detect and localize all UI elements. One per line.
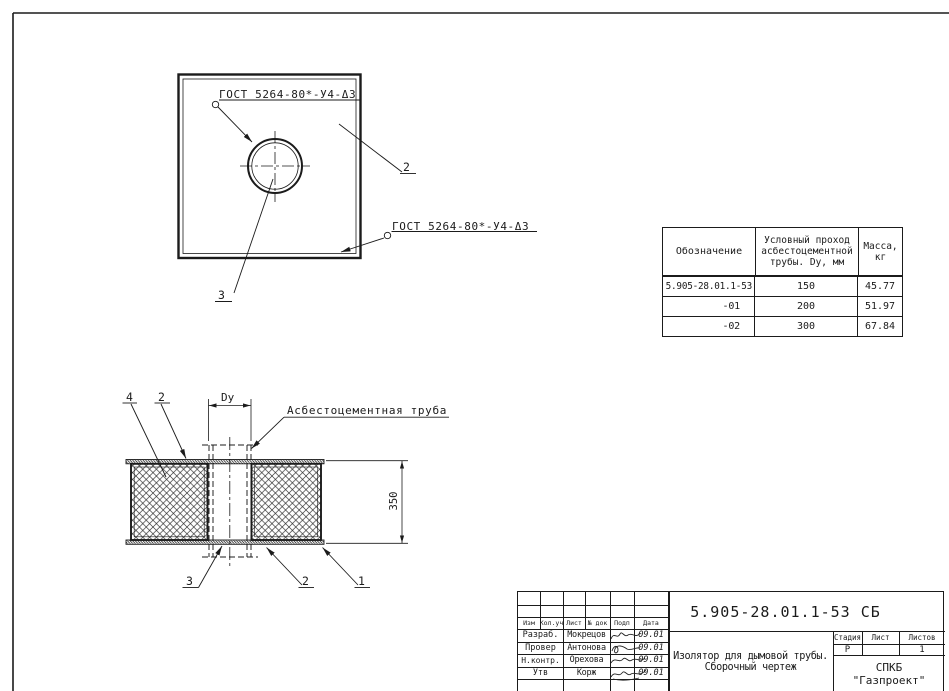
section-callout-2-top: 2 <box>158 390 165 404</box>
name-approver: Корж <box>563 667 610 680</box>
signature-developer <box>609 629 643 642</box>
spec-cell-designation: 5.905-28.01.1-53 <box>663 277 755 296</box>
sheets-label: Листов <box>899 631 945 644</box>
hole-centerlines <box>240 131 310 202</box>
insulation-left <box>131 464 208 540</box>
sheet-label: Лист <box>862 631 899 644</box>
section-callout-3: 3 <box>186 574 193 588</box>
spec-table: Обозначение Условный проход асбестоцемен… <box>662 227 903 337</box>
spec-row-1: 5.905-28.01.1-53 150 45.77 <box>663 277 902 297</box>
drawing-sheet: { "top_view": { "weld_note_1": "ГОСТ 526… <box>0 0 949 691</box>
section-callout-4: 4 <box>126 390 133 404</box>
sheet-frame <box>13 13 949 691</box>
weld-note-2: ГОСТ 5264-80*-У4-Δ3 <box>392 220 529 233</box>
role-approver: Утв <box>518 667 563 680</box>
col-izm: Изм <box>518 617 540 629</box>
col-podp: Подп <box>610 617 634 629</box>
spec-cell-mass: 51.97 <box>858 297 902 316</box>
drawing-linework <box>0 0 949 691</box>
sheets-value: 1 <box>899 644 945 655</box>
spec-table-header-row: Обозначение Условный проход асбестоцемен… <box>663 228 902 277</box>
top-view-callout-3: 3 <box>218 288 225 302</box>
callout-3-leader <box>215 179 273 302</box>
insulation-right <box>252 464 322 540</box>
col-koluch: Кол.уч <box>540 617 563 629</box>
top-view-callout-2: 2 <box>403 160 410 174</box>
stage-label: Стадия <box>833 631 862 644</box>
spec-cell-mass: 67.84 <box>858 317 902 336</box>
spec-cell-bore: 300 <box>755 317 858 336</box>
role-norm-control: Н.контр. <box>518 654 563 667</box>
signature-norm-control <box>609 654 649 667</box>
sheet-value <box>862 644 899 655</box>
dim-dy <box>209 399 252 441</box>
title-block: Изм Кол.уч Лист № док Подп Дата Разраб. … <box>517 591 944 691</box>
role-checker: Провер <box>518 642 563 655</box>
spec-cell-designation: -01 <box>663 297 755 316</box>
name-norm-control: Орехова <box>563 654 610 667</box>
section-callout-1: 1 <box>358 574 365 588</box>
spec-cell-bore: 200 <box>755 297 858 316</box>
pipe-label-leader <box>252 417 450 448</box>
spec-col-designation: Обозначение <box>663 228 756 275</box>
section-view <box>123 399 450 588</box>
stage-value: Р <box>833 644 862 655</box>
name-developer: Мокрецов <box>563 629 610 642</box>
document-designation: 5.905-28.01.1-53 СБ <box>668 592 945 631</box>
document-name-line1: Изолятор для дымовой трубы. <box>673 651 828 662</box>
section-callout-2-bottom: 2 <box>302 574 309 588</box>
organization: СПКБ "Газпроект" <box>833 655 945 691</box>
organization-line1: СПКБ <box>876 661 903 674</box>
spec-col-bore: Условный проход асбестоцементной трубы. … <box>756 228 859 275</box>
signature-checker <box>609 642 643 655</box>
dim-350-label: 350 <box>388 486 400 516</box>
document-name: Изолятор для дымовой трубы. Сборочный че… <box>668 631 833 691</box>
spec-col-mass: Масса, кг <box>859 228 902 275</box>
document-name-line2: Сборочный чертеж <box>705 662 797 673</box>
role-developer: Разраб. <box>518 629 563 642</box>
dim-dy-label: Dy <box>221 391 234 404</box>
spec-cell-bore: 150 <box>755 277 858 296</box>
spec-row-2: -01 200 51.97 <box>663 297 902 317</box>
col-list: Лист <box>563 617 585 629</box>
col-ndok: № док <box>585 617 610 629</box>
weld-leader-1 <box>212 100 361 142</box>
weld-note-1: ГОСТ 5264-80*-У4-Δ3 <box>219 88 356 101</box>
weld-leader-2 <box>341 232 537 253</box>
pipe-label: Асбестоцементная труба <box>287 404 447 417</box>
signature-approver <box>609 667 649 681</box>
top-view <box>179 75 538 302</box>
spec-cell-designation: -02 <box>663 317 755 336</box>
spec-row-3: -02 300 67.84 <box>663 317 902 336</box>
col-data: Дата <box>634 617 668 629</box>
spec-cell-mass: 45.77 <box>858 277 902 296</box>
organization-line2: "Газпроект" <box>853 674 926 687</box>
name-checker: Антонова <box>563 642 610 655</box>
